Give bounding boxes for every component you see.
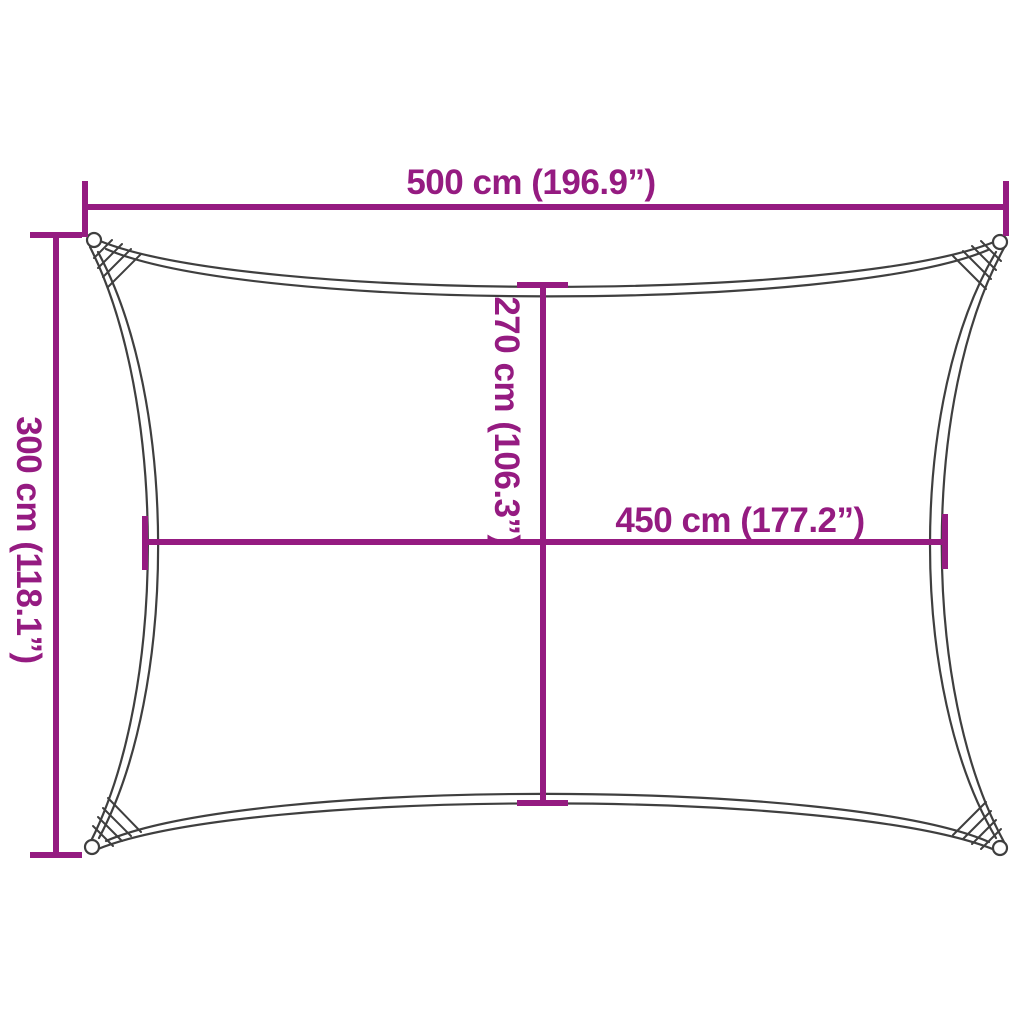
- corner-ring-top-left: [87, 233, 101, 247]
- dimension-label-width-top: 500 cm (196.9”): [406, 165, 655, 200]
- sail-edge-bottom-outer: [98, 803, 995, 850]
- sail-edge-left-outer: [90, 247, 148, 841]
- corner-ring-bottom-left: [85, 840, 99, 854]
- dimension-label-height-left: 300 cm (118.1”): [11, 416, 46, 663]
- dimension-label-width-inner: 450 cm (177.2”): [615, 503, 864, 538]
- corner-ring-top-right: [993, 235, 1007, 249]
- corner-stitching-bottom-right: [953, 802, 1001, 849]
- sail-edge-top-inner: [106, 249, 988, 296]
- sail-edge-right-outer: [942, 248, 1004, 842]
- corner-ring-bottom-right: [993, 841, 1007, 855]
- sail-dimension-diagram: 500 cm (196.9”) 300 cm (118.1”) 270 cm (…: [0, 0, 1024, 1024]
- dimension-label-height-inner: 270 cm (106.3”): [489, 296, 524, 545]
